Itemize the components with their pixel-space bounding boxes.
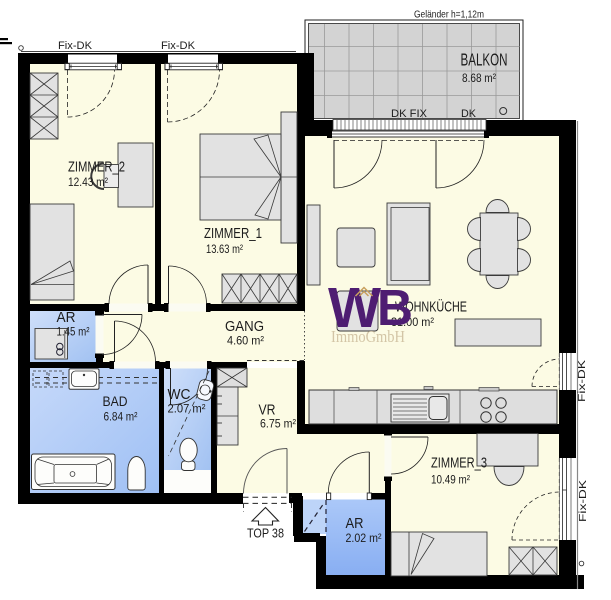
svg-text:Geländer h=1,12m: Geländer h=1,12m	[414, 9, 484, 21]
svg-text:ImmoGmbH: ImmoGmbH	[331, 327, 405, 346]
svg-text:AR: AR	[346, 515, 364, 532]
svg-text:Fix-DK: Fix-DK	[58, 40, 93, 52]
svg-text:GANG: GANG	[225, 318, 264, 335]
svg-text:WC: WC	[168, 386, 191, 403]
svg-text:DK FIX: DK FIX	[391, 108, 428, 120]
svg-text:6.75 m²: 6.75 m²	[260, 417, 296, 431]
svg-text:TOP 38: TOP 38	[247, 527, 284, 541]
svg-text:2.02 m²: 2.02 m²	[346, 531, 382, 545]
svg-text:ZIMMER_3: ZIMMER_3	[431, 455, 487, 472]
svg-text:BALKON: BALKON	[461, 50, 508, 70]
svg-text:BAD: BAD	[103, 393, 128, 409]
svg-text:13.63 m²: 13.63 m²	[206, 242, 243, 256]
svg-text:ZIMMER_2: ZIMMER_2	[68, 159, 125, 176]
svg-text:AR: AR	[57, 309, 76, 326]
svg-text:10.49 m²: 10.49 m²	[431, 473, 470, 487]
svg-text:Fix-DK: Fix-DK	[576, 360, 588, 402]
svg-text:Fix-DK: Fix-DK	[161, 40, 196, 52]
svg-text:4.60 m²: 4.60 m²	[227, 334, 264, 348]
svg-text:2.07 m²: 2.07 m²	[168, 402, 206, 416]
svg-text:DK: DK	[461, 108, 477, 120]
svg-text:6.84 m²: 6.84 m²	[104, 410, 138, 424]
svg-text:8.68 m²: 8.68 m²	[462, 71, 496, 85]
svg-text:ZIMMER_1: ZIMMER_1	[204, 225, 262, 242]
svg-text:12.43 m²: 12.43 m²	[68, 175, 108, 189]
svg-text:1.45 m²: 1.45 m²	[57, 325, 90, 339]
svg-text:Fix-DK: Fix-DK	[577, 480, 589, 522]
